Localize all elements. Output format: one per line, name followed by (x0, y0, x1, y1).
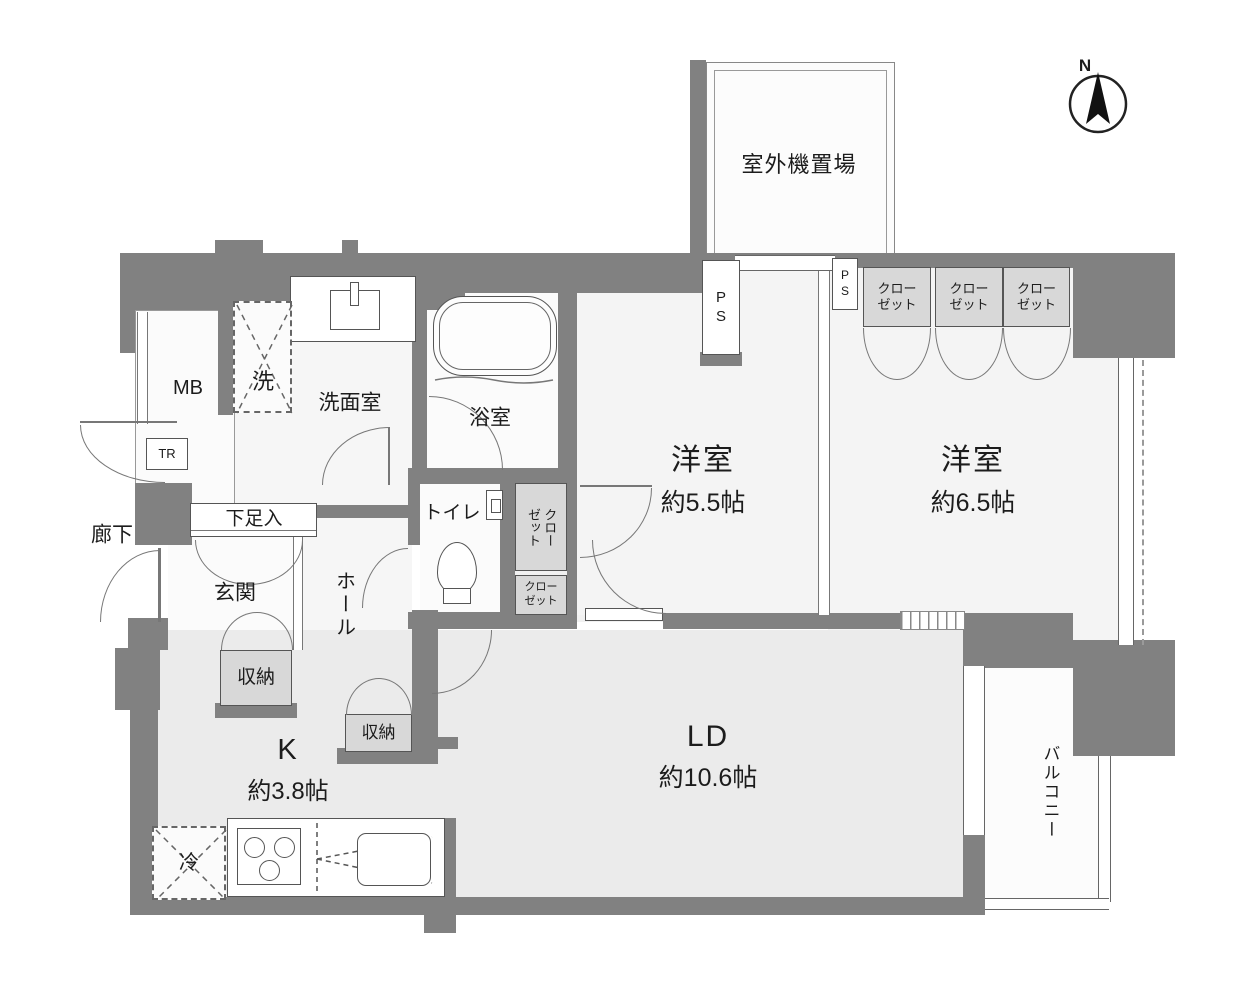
bathroom-label: 浴室 (469, 405, 511, 430)
wall-tab (342, 240, 358, 255)
closet-3-line1: クロー (1017, 281, 1056, 297)
window-bedroom55-north (735, 255, 835, 271)
washer-x-lines (235, 303, 294, 415)
kitchen-label: K 約3.8帖 (247, 734, 328, 806)
eaves-dashed-line (1142, 360, 1144, 645)
tr-label: TR (158, 446, 175, 462)
ld-size: 約10.6帖 (659, 758, 758, 794)
stove (237, 828, 301, 885)
hall-label: ホール (330, 571, 359, 640)
closet-tall-col1: クロー (542, 508, 556, 547)
entrance-label: 玄関 (214, 580, 256, 605)
closet-1-line2: ゼット (877, 297, 916, 313)
compass-icon (1060, 56, 1140, 140)
shoe-cabinet-label: 下足入 (225, 509, 282, 532)
corridor-label: 廊下 (91, 522, 133, 547)
bedroom-55-size: 約5.5帖 (661, 483, 746, 519)
washer-label: 洗 (252, 369, 274, 395)
wall-outdoor-left (690, 60, 706, 265)
mb-label: MB (173, 376, 203, 400)
closet-1-line1: クロー (877, 281, 916, 297)
compass-n-label: N (1079, 56, 1091, 76)
stove-burner (244, 837, 265, 858)
wall-south (130, 897, 985, 915)
bedroom-65-size: 約6.5帖 (931, 483, 1016, 519)
outdoor-unit-label: 室外機置場 (741, 152, 856, 178)
washroom-door-leaf (388, 427, 390, 485)
stove-burner (259, 860, 280, 881)
wall (115, 648, 160, 710)
wall (460, 253, 706, 293)
wall (408, 468, 577, 484)
balcony-label: バルコニー (1038, 745, 1063, 840)
wall (558, 253, 577, 484)
fridge-label: 冷 (179, 851, 199, 875)
closet-tall-box: クロー ゼット (515, 483, 567, 571)
wall-corner-ne (1073, 253, 1175, 358)
bedroom-65-label: 洋室 約6.5帖 (931, 435, 1016, 519)
storage-hall-box: 収納 (345, 714, 412, 752)
closet-2-box: クロー ゼット (935, 267, 1003, 327)
wall (135, 483, 192, 545)
closet-small-line1: クロー (525, 581, 558, 595)
balcony-rail-east (1098, 756, 1111, 902)
storage-entrance-label: 収納 (237, 666, 275, 690)
toilet-bowl (437, 542, 477, 594)
entrance-door-arc (100, 550, 160, 622)
washbasin-faucet (350, 282, 359, 306)
toilet-base (443, 588, 471, 604)
wall (663, 613, 900, 629)
wall (218, 293, 233, 415)
bathtub-inner-line (439, 302, 551, 370)
toilet-label: トイレ (423, 503, 480, 526)
wall (963, 833, 985, 913)
sliding-door-ld-bedroom65 (900, 611, 965, 630)
wall-partition-bedrooms (818, 268, 830, 615)
storage-entrance-box: 収納 (220, 650, 292, 706)
kitchen-size: 約3.8帖 (247, 771, 328, 806)
closet-3-box: クロー ゼット (1003, 267, 1070, 327)
mb-door-leaf (80, 421, 177, 423)
bedroom-55-label: 洋室 約5.5帖 (661, 435, 746, 519)
wall-tab (215, 240, 263, 255)
wall-balcony-pillar (1073, 640, 1175, 756)
kitchen-name: K (247, 734, 328, 767)
closet-small-box: クロー ゼット (515, 575, 567, 615)
ld-name: LD (659, 720, 758, 754)
ld-label: LD 約10.6帖 (659, 720, 758, 794)
wall (963, 613, 1073, 668)
closet-small-line2: ゼット (525, 595, 558, 609)
balcony-rail-south (985, 898, 1109, 910)
closet-2-line2: ゼット (949, 297, 988, 313)
storage-hall-label: 収納 (362, 722, 396, 743)
window-ld-balcony (963, 666, 985, 835)
closet-tall-col2: ゼット (526, 508, 540, 547)
washlet-inner-icon (491, 499, 501, 513)
wall (408, 484, 420, 545)
bathtub (433, 296, 557, 376)
wall (120, 253, 135, 353)
kitchen-sink (357, 833, 431, 886)
washer-space (233, 301, 292, 413)
closet-1-box: クロー ゼット (863, 267, 931, 327)
bedroom-55-name: 洋室 (661, 435, 746, 479)
wall (567, 483, 577, 622)
ps-box-top: PS (702, 260, 740, 355)
wall-tab (424, 915, 456, 933)
bedroom-65-name: 洋室 (931, 435, 1016, 479)
ps-box-right: PS (832, 258, 858, 310)
mb-front-line (137, 312, 148, 424)
window-bedroom65-east (1118, 358, 1134, 645)
closet-2-line1: クロー (949, 281, 988, 297)
wall-stub (428, 737, 458, 749)
floor-plan: 収納 収納 クロー ゼット クロー ゼット PS PS クロー ゼット クロー … (0, 0, 1246, 984)
washroom-label: 洗面室 (319, 390, 382, 415)
bedroom-55-door-leaf (580, 485, 652, 487)
bath-wave-line (433, 372, 555, 386)
ps-right-label: PS (839, 268, 851, 300)
ps-top-label: PS (714, 289, 729, 327)
entrance-door-leaf (158, 548, 161, 622)
toilet-washlet-icon (486, 490, 503, 520)
closet-3-line2: ゼット (1017, 297, 1056, 313)
stove-burner (274, 837, 295, 858)
